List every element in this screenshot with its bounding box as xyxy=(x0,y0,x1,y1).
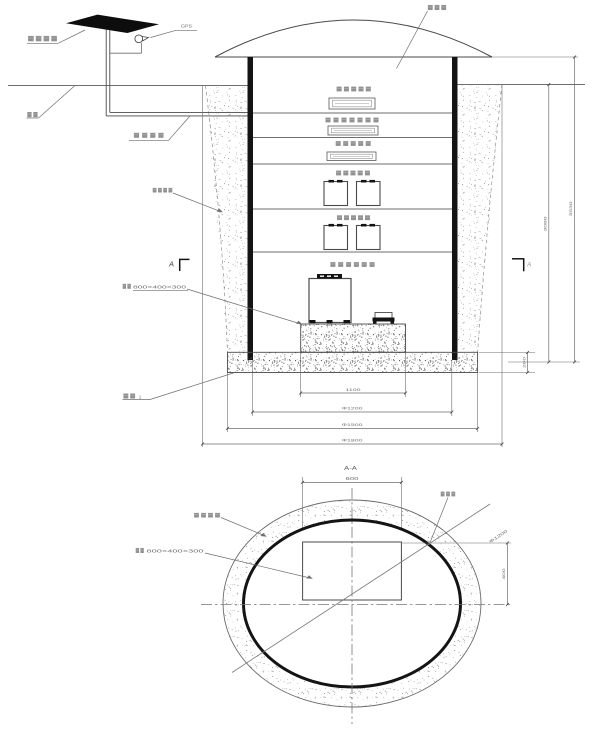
svg-text:A: A xyxy=(168,260,174,269)
svg-text:Φ1200: Φ1200 xyxy=(342,405,364,410)
svg-text:200: 200 xyxy=(522,356,527,368)
svg-text:800×400×300: 800×400×300 xyxy=(133,284,187,290)
svg-text:Φ1500: Φ1500 xyxy=(342,422,364,427)
svg-text:3080: 3080 xyxy=(542,215,547,231)
svg-text:A: A xyxy=(526,262,531,269)
svg-text:GPS: GPS xyxy=(181,24,192,29)
svg-text:A-A: A-A xyxy=(344,466,358,472)
svg-text:600: 600 xyxy=(346,476,360,481)
svg-text:Φ1800: Φ1800 xyxy=(342,437,364,442)
svg-text:3530: 3530 xyxy=(568,200,573,216)
svg-text:1: 1 xyxy=(139,394,142,399)
svg-text:800×400×300: 800×400×300 xyxy=(147,549,205,555)
svg-text:400: 400 xyxy=(501,567,506,579)
svg-text:1100: 1100 xyxy=(346,387,362,392)
